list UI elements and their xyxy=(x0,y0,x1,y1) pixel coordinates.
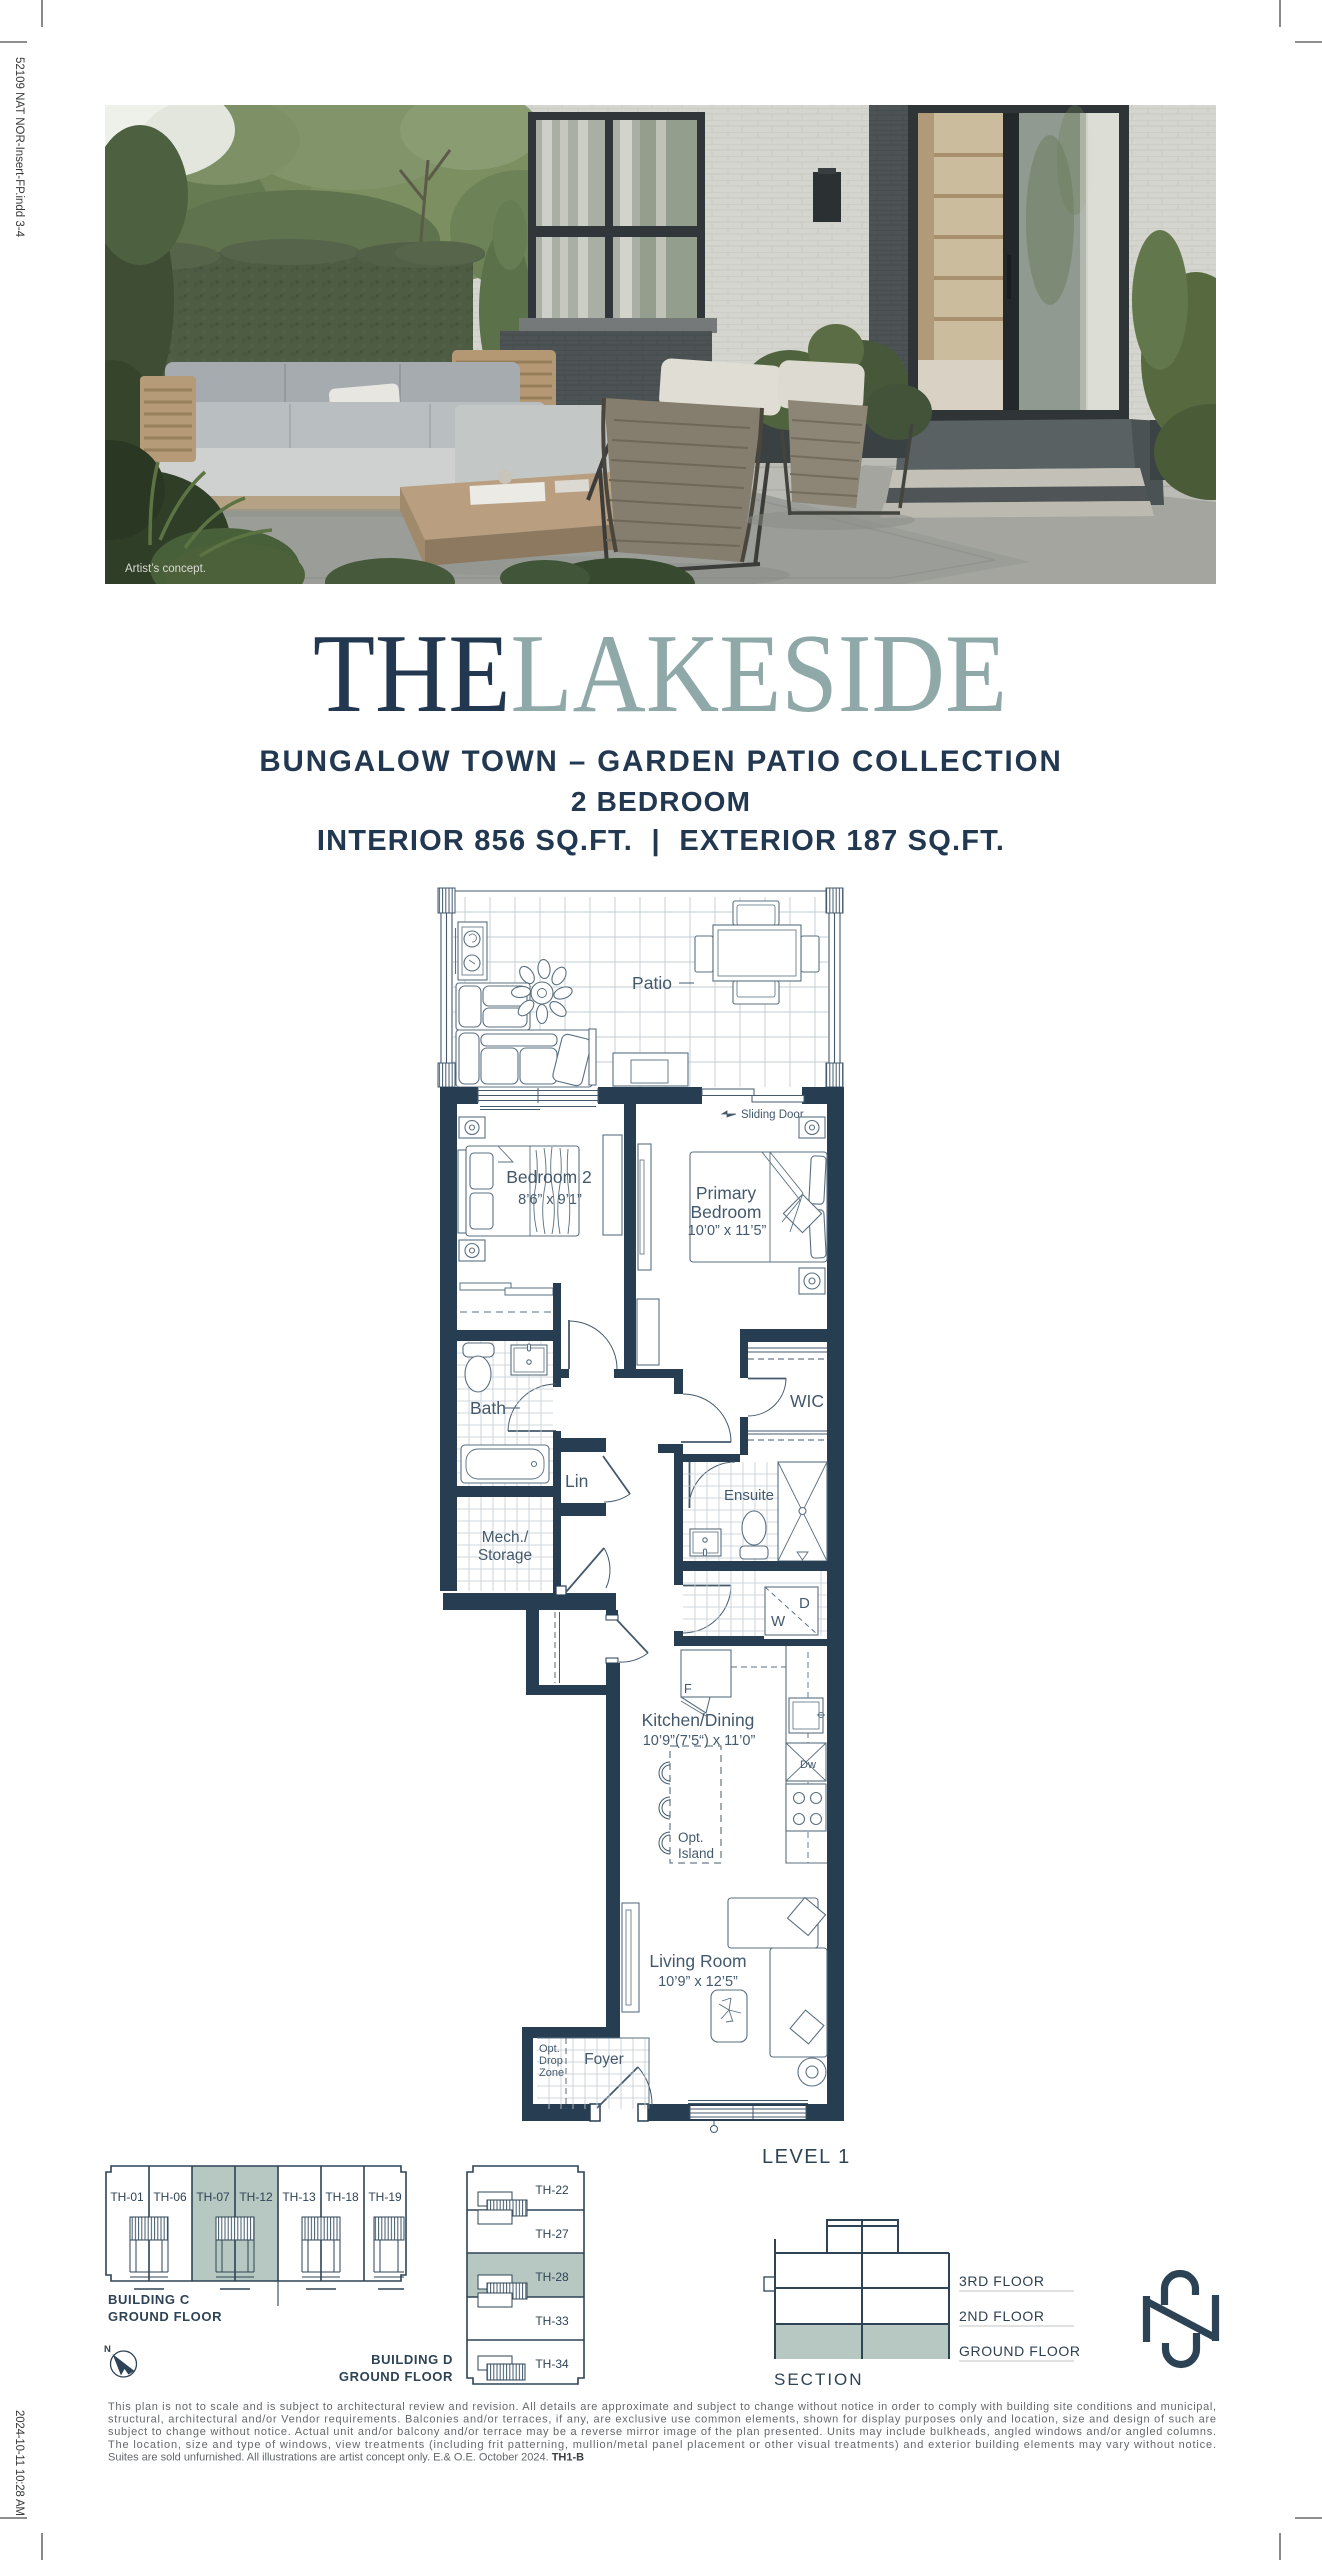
svg-text:Island: Island xyxy=(678,1846,714,1861)
svg-text:SECTION: SECTION xyxy=(774,2370,864,2389)
svg-text:Patio: Patio xyxy=(632,973,672,993)
svg-text:TH-27: TH-27 xyxy=(535,2227,569,2241)
svg-text:Sliding Door: Sliding Door xyxy=(741,1109,804,1121)
svg-text:W: W xyxy=(771,1613,786,1630)
svg-text:WIC: WIC xyxy=(790,1391,824,1411)
svg-text:Suites are sold unfurnished. A: Suites are sold unfurnished. All illustr… xyxy=(108,2451,584,2463)
svg-text:structural, architectural and/: structural, architectural and/or Vendor … xyxy=(108,2414,1216,2426)
svg-text:TH-01: TH-01 xyxy=(110,2190,144,2204)
svg-text:8’6” x 9’1”: 8’6” x 9’1” xyxy=(518,1192,582,1208)
svg-text:Mech./: Mech./ xyxy=(482,1529,529,1546)
svg-text:10’9” x 12’5”: 10’9” x 12’5” xyxy=(658,1974,738,1990)
svg-text:TH-34: TH-34 xyxy=(535,2357,569,2371)
svg-text:Foyer: Foyer xyxy=(584,2051,624,2068)
svg-text:TH-28: TH-28 xyxy=(535,2270,569,2284)
svg-text:subject to change without noti: subject to change without notice. Actual… xyxy=(108,2426,1216,2438)
svg-text:This plan is not to scale and: This plan is not to scale and is subject… xyxy=(108,2401,1216,2413)
svg-text:Opt.: Opt. xyxy=(678,1830,704,1845)
svg-text:10’9”(7’5“) x 11’0”: 10’9”(7’5“) x 11’0” xyxy=(643,1733,756,1749)
svg-text:TH-18: TH-18 xyxy=(325,2190,359,2204)
svg-text:TH-13: TH-13 xyxy=(282,2190,316,2204)
svg-text:Ensuite: Ensuite xyxy=(724,1487,774,1504)
svg-text:TH-12: TH-12 xyxy=(239,2190,273,2204)
svg-text:Primary: Primary xyxy=(696,1183,757,1203)
svg-text:INTERIOR 856 SQ.FT. | EXTERI: INTERIOR 856 SQ.FT. | EXTERIOR 187 SQ.FT… xyxy=(317,825,1005,857)
svg-text:BUILDING D: BUILDING D xyxy=(371,2352,453,2367)
svg-text:F: F xyxy=(684,1682,692,1696)
svg-text:Kitchen/Dining: Kitchen/Dining xyxy=(642,1710,755,1730)
svg-text:Bedroom 2: Bedroom 2 xyxy=(506,1167,592,1187)
svg-text:Bath: Bath xyxy=(470,1398,506,1418)
svg-text:3RD FLOOR: 3RD FLOOR xyxy=(959,2273,1045,2289)
svg-text:GROUND FLOOR: GROUND FLOOR xyxy=(959,2343,1081,2359)
svg-text:Lin: Lin xyxy=(565,1471,588,1491)
svg-text:Storage: Storage xyxy=(478,1547,532,1564)
svg-text:GROUND FLOOR: GROUND FLOOR xyxy=(339,2369,453,2384)
svg-text:Dw: Dw xyxy=(800,1759,816,1771)
svg-text:Bedroom: Bedroom xyxy=(690,1202,761,1222)
svg-text:LEVEL 1: LEVEL 1 xyxy=(762,2146,851,2168)
svg-text:2 BEDROOM: 2 BEDROOM xyxy=(571,786,751,817)
svg-text:2024-10-11 10:28 AM: 2024-10-11 10:28 AM xyxy=(13,2410,25,2516)
svg-text:BUNGALOW TOWN – GARDEN PATIO C: BUNGALOW TOWN – GARDEN PATIO COLLECTION xyxy=(259,745,1062,778)
svg-text:2ND FLOOR: 2ND FLOOR xyxy=(959,2308,1045,2324)
svg-text:D: D xyxy=(799,1595,810,1612)
svg-text:Artist’s concept.: Artist’s concept. xyxy=(125,563,206,575)
svg-text:GROUND FLOOR: GROUND FLOOR xyxy=(108,2309,222,2324)
svg-text:TH-33: TH-33 xyxy=(535,2314,569,2328)
svg-text:THELAKESIDE: THELAKESIDE xyxy=(313,612,1007,736)
svg-text:10’0” x 11’5”: 10’0” x 11’5” xyxy=(688,1223,767,1239)
svg-text:Drop: Drop xyxy=(539,2055,563,2067)
svg-text:BUILDING C: BUILDING C xyxy=(108,2292,190,2307)
svg-text:The location, size and type of: The location, size and type of windows, … xyxy=(108,2439,1216,2451)
svg-text:52109 NAT NOR-Insert-FP.indd: 52109 NAT NOR-Insert-FP.indd 3-4 xyxy=(13,57,25,238)
svg-text:TH-06: TH-06 xyxy=(153,2190,187,2204)
svg-text:Zone: Zone xyxy=(539,2067,564,2079)
svg-text:TH-07: TH-07 xyxy=(196,2190,230,2204)
svg-text:TH-22: TH-22 xyxy=(535,2183,569,2197)
svg-text:Living Room: Living Room xyxy=(649,1951,746,1971)
svg-text:Opt.: Opt. xyxy=(539,2043,560,2055)
svg-text:TH-19: TH-19 xyxy=(368,2190,402,2204)
svg-text:N: N xyxy=(104,2344,111,2355)
